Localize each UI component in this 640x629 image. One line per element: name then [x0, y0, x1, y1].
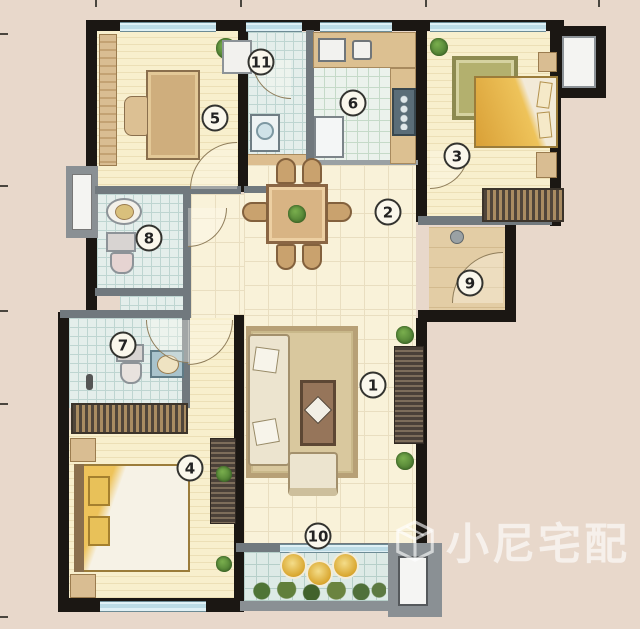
- room-marker-2: 2: [375, 199, 402, 226]
- kitchen-sink-2: [352, 40, 372, 60]
- plant-bedroom4-icon-2: [216, 556, 232, 572]
- dining-chair: [242, 202, 268, 222]
- plant-living-icon: [396, 326, 414, 344]
- dining-chair: [302, 158, 322, 184]
- wardrobe-bedroom3: [482, 188, 564, 222]
- dining-chair: [326, 202, 352, 222]
- entry-fixture-icon: [450, 230, 464, 244]
- room-marker-9: 9: [457, 270, 484, 297]
- watermark-cube-logo-icon: [392, 518, 438, 564]
- tick-top-3: [425, 0, 427, 7]
- tick-top-4: [598, 0, 600, 7]
- floorplan: 1234567891011 小尼宅配: [0, 0, 640, 629]
- nightstand-bedroom4-2: [70, 574, 96, 598]
- stove-burners-icon: [397, 94, 411, 130]
- window-bedroom4: [100, 601, 206, 612]
- tick-top-2: [240, 0, 242, 7]
- dining-chair: [302, 244, 322, 270]
- watermark-text: 小尼宅配: [446, 510, 630, 572]
- study-shelf: [99, 34, 117, 166]
- bed4-pillow: [88, 476, 110, 506]
- kitchen-sink: [318, 38, 346, 62]
- room-marker-3: 3: [444, 143, 471, 170]
- window-bedroom3: [430, 22, 546, 32]
- room-marker-6: 6: [340, 90, 367, 117]
- wall-entry-bottom: [418, 310, 516, 322]
- wall-left-lower: [58, 312, 69, 612]
- sofa-pillow: [252, 346, 279, 373]
- room-marker-4: 4: [177, 455, 204, 482]
- bed4-headboard: [74, 464, 84, 572]
- balcony-plants: [248, 582, 386, 600]
- tick-left-4: [0, 403, 8, 405]
- tv-cabinet-living: [394, 346, 424, 444]
- tick-left-5: [0, 616, 8, 618]
- wall-kitchen-bedroom3: [416, 22, 427, 222]
- balcony-rail: [240, 601, 390, 611]
- shower-head-icon: [86, 374, 93, 390]
- bath7-toilet: [120, 362, 142, 384]
- nightstand-bedroom3: [538, 52, 557, 72]
- plant-living-icon-2: [396, 452, 414, 470]
- tick-left-3: [0, 310, 8, 312]
- bed4-pillow-2: [88, 516, 110, 546]
- balcony-pouf: [280, 552, 307, 579]
- dining-chair: [276, 244, 296, 270]
- bath8-basin: [115, 204, 134, 220]
- room-marker-5: 5: [202, 105, 229, 132]
- wall-bath8-bottom: [95, 288, 188, 296]
- dining-centerpiece-icon: [288, 205, 306, 223]
- fridge: [314, 116, 344, 158]
- bay-window-left: [72, 174, 92, 230]
- floorplan-screenshot: { "watermark": { "text": "小尼宅配", "logo":…: [0, 0, 640, 629]
- room-marker-11: 11: [248, 49, 275, 76]
- dining-chair: [276, 158, 296, 184]
- bath8-toilet-tank: [106, 232, 136, 252]
- window-kitchen: [320, 22, 392, 32]
- tick-left: [0, 33, 8, 35]
- wardrobe-bedroom4: [71, 403, 188, 434]
- plant-bedroom4-icon: [216, 466, 232, 482]
- washing-machine-drum: [256, 122, 274, 140]
- bay-window-tr: [562, 36, 596, 88]
- desk: [146, 70, 200, 160]
- bath8-toilet: [110, 252, 134, 274]
- tick-left-2: [0, 185, 8, 187]
- room-marker-10: 10: [305, 523, 332, 550]
- sofa-pillow-2: [252, 418, 280, 446]
- room-marker-1: 1: [360, 372, 387, 399]
- room-marker-8: 8: [136, 225, 163, 252]
- window-laundry: [246, 22, 302, 32]
- room-marker-7: 7: [110, 332, 137, 359]
- plant-bedroom3-icon: [430, 38, 448, 56]
- bed3-pillow-2: [537, 111, 553, 138]
- wall-bath7-top: [60, 310, 188, 318]
- watermark: 小尼宅配: [392, 510, 630, 572]
- balcony-pouf-3: [332, 552, 359, 579]
- desk-chair: [124, 96, 148, 136]
- wall-entry-right: [505, 218, 516, 318]
- nightstand-bedroom4: [70, 438, 96, 462]
- window-study: [120, 22, 216, 32]
- nightstand-bedroom3-2: [536, 152, 557, 178]
- tick-top: [95, 0, 97, 7]
- armchair: [288, 452, 338, 496]
